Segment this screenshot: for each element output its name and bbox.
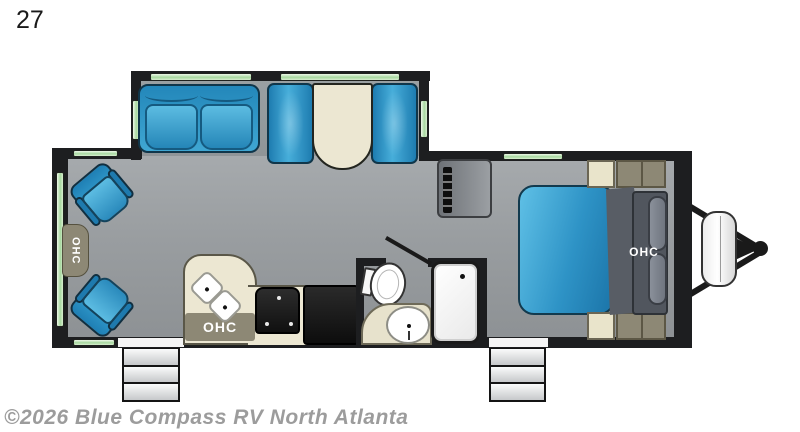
step-tread: [491, 367, 544, 383]
sofa-back-seam: [145, 89, 198, 102]
bedroom-cabinet-bottom: [616, 312, 666, 340]
step-tread: [124, 349, 178, 365]
sofa-back-seam: [200, 89, 253, 102]
dealer-watermark: ©2026 Blue Compass RV North Atlanta: [4, 406, 408, 430]
step-tread: [124, 367, 178, 383]
nightstand-bottom: [587, 312, 615, 340]
pillow: [648, 196, 667, 251]
nightstand-top: [587, 160, 615, 188]
dinette-table: [312, 83, 373, 170]
sofa: [138, 84, 260, 153]
window-bedroom: [503, 153, 563, 160]
vanity-sink: [386, 306, 430, 344]
window-sofa: [150, 73, 252, 81]
step-tread: [491, 384, 544, 400]
sofa-cushion: [145, 104, 198, 150]
tv: [443, 167, 452, 213]
range-stove: [255, 287, 300, 334]
toilet-bowl: [366, 260, 409, 310]
tub-shower: [431, 261, 480, 344]
entry-door-opening-main: [118, 338, 184, 347]
wall-front: [674, 151, 692, 348]
model-number-label: 27: [16, 6, 44, 35]
entry-steps-bedroom: [489, 347, 546, 402]
pillow: [648, 253, 667, 305]
dinette-bench-right: [371, 83, 418, 164]
window-top-left: [73, 150, 118, 157]
burner-dot: [289, 322, 293, 326]
hitch-ball: [753, 241, 768, 256]
entry-steps-main: [122, 347, 180, 402]
window-dinette: [280, 73, 400, 81]
bedroom-overhead-cabinet-label: OHC: [622, 245, 666, 259]
step-tread: [491, 349, 544, 365]
dinette-bench-left: [267, 83, 314, 164]
burner-dot: [277, 296, 281, 300]
burner-dot: [265, 322, 269, 326]
window-bottom-left: [73, 339, 115, 346]
rv-floorplan: 27 OHC: [0, 0, 800, 432]
bedroom-cabinet-top: [616, 160, 666, 188]
window-slideout-right: [420, 100, 428, 138]
refrigerator: [303, 285, 359, 345]
entry-door-opening-bedroom: [489, 338, 548, 347]
propane-tank: [701, 211, 737, 287]
sofa-cushion: [200, 104, 253, 150]
rear-overhead-cabinet: OHC: [62, 224, 89, 277]
queen-bed: [518, 185, 615, 315]
step-tread: [124, 384, 178, 400]
